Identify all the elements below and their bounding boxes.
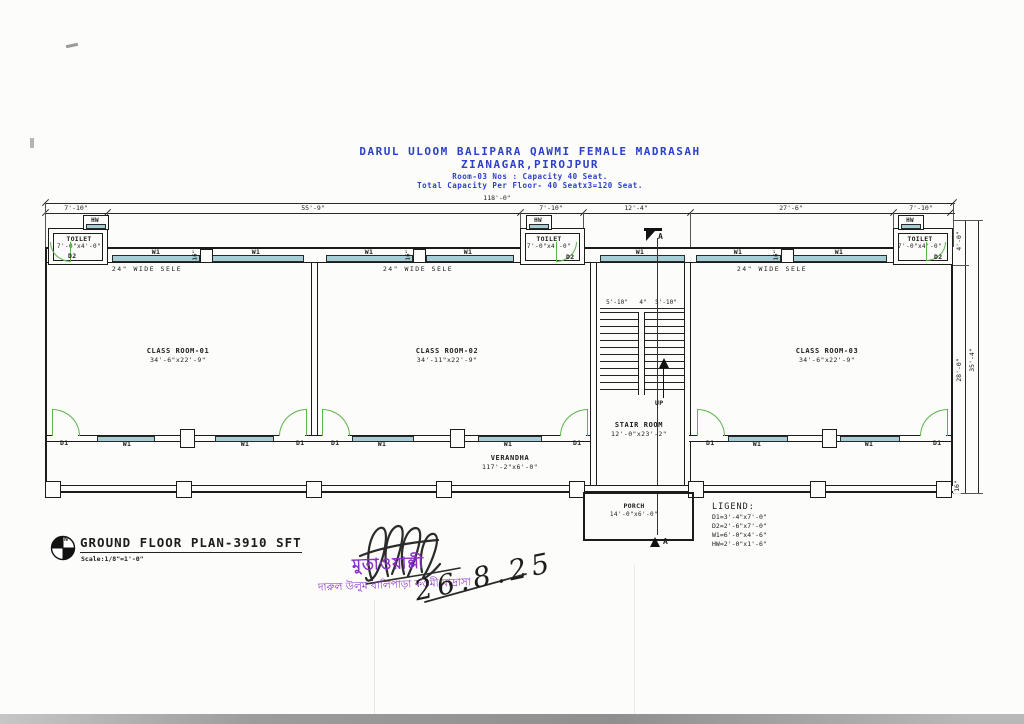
wall-pier	[200, 249, 213, 263]
wall-post	[450, 429, 465, 448]
scanned-floor-plan-page: DARUL ULOOM BALIPARA QAWMI FEMALE MADRAS…	[0, 0, 1024, 724]
scan-mark	[30, 138, 34, 148]
stair-dim-line	[600, 308, 684, 309]
door-d1-arc	[279, 409, 307, 436]
room-divider	[311, 263, 318, 438]
scanner-edge-bar	[0, 714, 1024, 724]
up-label: UP	[655, 400, 663, 407]
section-marker-label: A	[663, 538, 668, 546]
legend-item: D2=2'-6"x7'-0"	[712, 523, 767, 530]
verandah-name: VERANDHA	[491, 455, 530, 462]
dim-right-edge: 16"	[954, 478, 961, 494]
porch-name: PORCH	[623, 503, 644, 510]
shelf-note: 24" WIDE SELE	[737, 266, 807, 273]
door-label-d2: D2	[566, 254, 574, 261]
verandah-post	[176, 481, 192, 498]
door-label-d1: D1	[60, 440, 68, 447]
stair-dim: 4"	[637, 300, 648, 306]
window-label: W1	[252, 249, 260, 256]
plan-title: GROUND FLOOR PLAN-3910 SFT	[80, 537, 302, 553]
classroom-2-name: CLASS ROOM-02	[416, 348, 479, 355]
stair-left-wall	[590, 263, 597, 485]
window-label: W1	[123, 441, 131, 448]
extension-line	[953, 265, 969, 266]
door-label-d1: D1	[706, 440, 714, 447]
verandah-post	[936, 481, 952, 498]
door-label-d1: D1	[331, 440, 339, 447]
paper-crease	[634, 565, 635, 714]
shelf-note: 24" WIDE SELE	[383, 266, 453, 273]
window-w1	[600, 255, 685, 262]
classroom-3-size: 34'-6"x22'-9"	[799, 357, 855, 364]
north-letter: N	[64, 536, 68, 543]
right-wall	[951, 247, 953, 493]
classroom-1-name: CLASS ROOM-01	[147, 348, 210, 355]
window-label: W1	[365, 249, 373, 256]
shelf-note: 24" WIDE SELE	[112, 266, 182, 273]
section-marker-flag	[646, 231, 655, 241]
stair-rail	[638, 312, 645, 395]
door-label-d2: D2	[934, 254, 942, 261]
dim-line	[45, 203, 955, 204]
legend-title: LIGEND:	[712, 503, 755, 512]
verandah-post	[306, 481, 322, 498]
classroom-3-name: CLASS ROOM-03	[796, 348, 859, 355]
hw-window	[86, 224, 106, 229]
section-marker-label: A	[658, 233, 663, 241]
window-label: W1	[241, 441, 249, 448]
stamp-title: মুতাওয়াল্লী	[352, 555, 425, 574]
door-d1-arc	[52, 409, 80, 436]
pier-size-label: 16"	[774, 250, 780, 261]
dim-segment: 7'-10"	[62, 205, 89, 212]
drawing-subtitle: ZIANAGAR,PIROJPUR	[461, 159, 599, 170]
dim-line	[45, 213, 955, 214]
classroom-2-size: 34'-11"x22'-9"	[417, 357, 477, 364]
dim-line-vert	[978, 220, 979, 493]
window-w1	[793, 255, 887, 262]
dim-segment: 27'-6"	[777, 205, 804, 212]
dim-line-vert	[965, 220, 966, 493]
wall-pier	[413, 249, 426, 263]
up-arrow-line	[663, 368, 664, 398]
dim-segment: 7'-10"	[537, 205, 564, 212]
window-label: W1	[152, 249, 160, 256]
stair-room-name: STAIR ROOM	[615, 422, 663, 429]
classroom-1-size: 34'-6"x22'-9"	[150, 357, 206, 364]
left-wall	[45, 247, 47, 493]
door-d1-arc	[920, 409, 948, 436]
up-arrow-head	[659, 358, 669, 368]
porch-size: 14'-0"x6'-0"	[610, 512, 658, 518]
window-label: W1	[865, 441, 873, 448]
pier-size-label: 16"	[406, 250, 412, 261]
window-w1	[426, 255, 514, 262]
verandah-size: 117'-2"x6'-0"	[482, 464, 538, 471]
dim-segment: 55'-9"	[299, 205, 326, 212]
hw-window	[901, 224, 921, 229]
verandah-post	[810, 481, 826, 498]
window-w1	[212, 255, 304, 262]
scan-mark	[66, 43, 78, 48]
extension-line	[953, 220, 983, 221]
legend-item: W1=6'-0"x4'-6"	[712, 532, 767, 539]
door-label-d1: D1	[296, 440, 304, 447]
legend-item: HW=2'-0"x1'-6"	[712, 541, 767, 548]
stair-dim: 5'-10"	[604, 300, 630, 306]
door-d1-arc	[560, 409, 588, 436]
window-label: W1	[504, 441, 512, 448]
stair-room-size: 12'-0"x23'-2"	[611, 431, 667, 438]
door-d1-arc	[322, 409, 350, 436]
legend-item: D1=3'-4"x7'-0"	[712, 514, 767, 521]
window-w1	[112, 255, 200, 262]
window-label: W1	[753, 441, 761, 448]
capacity-note-2: Total Capacity Per Floor- 40 Seatx3=120 …	[417, 182, 643, 190]
wall-post	[822, 429, 837, 448]
verandah-post	[436, 481, 452, 498]
hw-window	[529, 224, 549, 229]
window-label: W1	[378, 441, 386, 448]
verandah-post	[45, 481, 61, 498]
dim-toilet-depth: 4'-0"	[956, 229, 963, 253]
door-d1-arc	[697, 409, 725, 436]
dim-overall-width: 118'-0"	[481, 195, 512, 202]
dim-segment: 12'-4"	[622, 205, 649, 212]
window-label: W1	[636, 249, 644, 256]
dim-right-inner: 28'-0"	[956, 356, 963, 383]
dim-right-outer: 35'-4"	[969, 346, 976, 373]
door-label-d1: D1	[573, 440, 581, 447]
dim-segment: 7'-10"	[907, 205, 934, 212]
stair-right-wall	[684, 263, 691, 485]
plan-scale: Scale:1/8"=1'-0"	[81, 556, 144, 563]
door-label-d2: D2	[68, 253, 76, 260]
door-label-d1: D1	[933, 440, 941, 447]
capacity-note-1: Room-03 Nos : Capacity 40 Seat.	[452, 173, 607, 181]
window-w1	[696, 255, 781, 262]
drawing-title: DARUL ULOOM BALIPARA QAWMI FEMALE MADRAS…	[359, 146, 700, 157]
extension-line	[45, 203, 46, 247]
window-label: W1	[734, 249, 742, 256]
window-label: W1	[835, 249, 843, 256]
pier-size-label: 16"	[193, 250, 199, 261]
wall-pier	[781, 249, 794, 263]
window-w1	[326, 255, 413, 262]
window-label: W1	[464, 249, 472, 256]
section-marker-flag	[650, 537, 660, 547]
wall-post	[180, 429, 195, 448]
